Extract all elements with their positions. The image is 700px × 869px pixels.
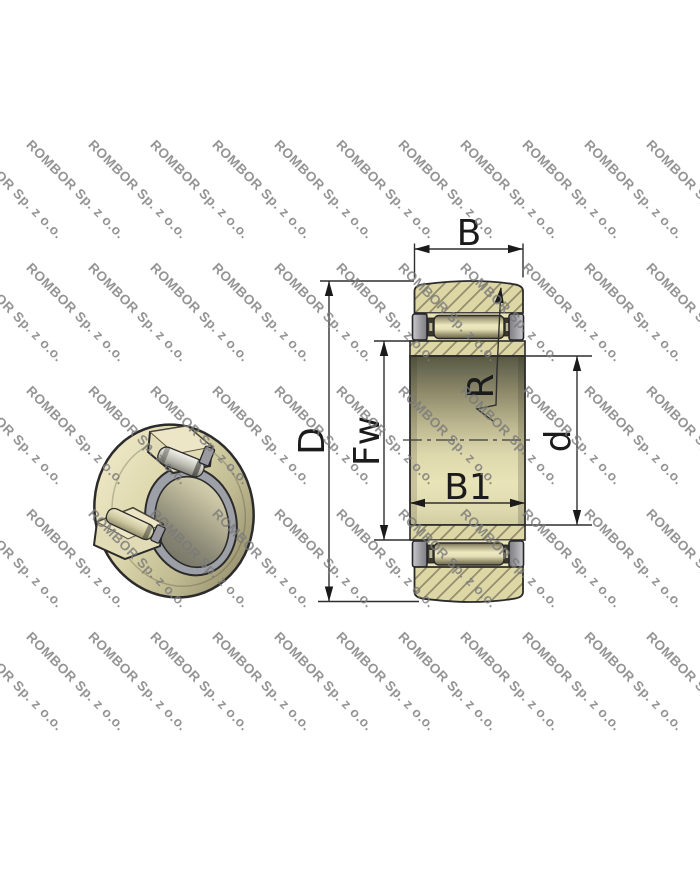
outer-ring-top-section xyxy=(415,281,524,313)
end-washer-left-top xyxy=(413,314,428,340)
end-washer-right-bottom xyxy=(509,541,524,567)
dim-R-label: R xyxy=(461,373,502,398)
inner-ring-bottom-section xyxy=(410,525,525,540)
screenshot-root: B B1 D Fw d R ROMBOR Sp. z o.o.ROMBOR Sp… xyxy=(0,0,700,869)
inner-ring-top-section xyxy=(410,341,525,356)
dim-B-label: B xyxy=(457,213,482,254)
dim-d-label: d xyxy=(538,430,579,453)
dim-Fw-label: Fw xyxy=(347,416,388,466)
end-washer-right-top xyxy=(509,314,524,340)
bearing-3d-view xyxy=(74,406,274,617)
dim-D-label: D xyxy=(292,427,333,455)
bearing-technical-drawing: B B1 D Fw d R xyxy=(0,0,700,869)
end-washer-left-bottom xyxy=(413,541,428,567)
needle-roller-section-top xyxy=(434,316,504,339)
outer-ring-bottom-section xyxy=(415,567,524,602)
cross-section-view xyxy=(403,281,533,602)
needle-roller-section-bottom xyxy=(434,543,504,565)
dim-B1-label: B1 xyxy=(444,467,492,508)
